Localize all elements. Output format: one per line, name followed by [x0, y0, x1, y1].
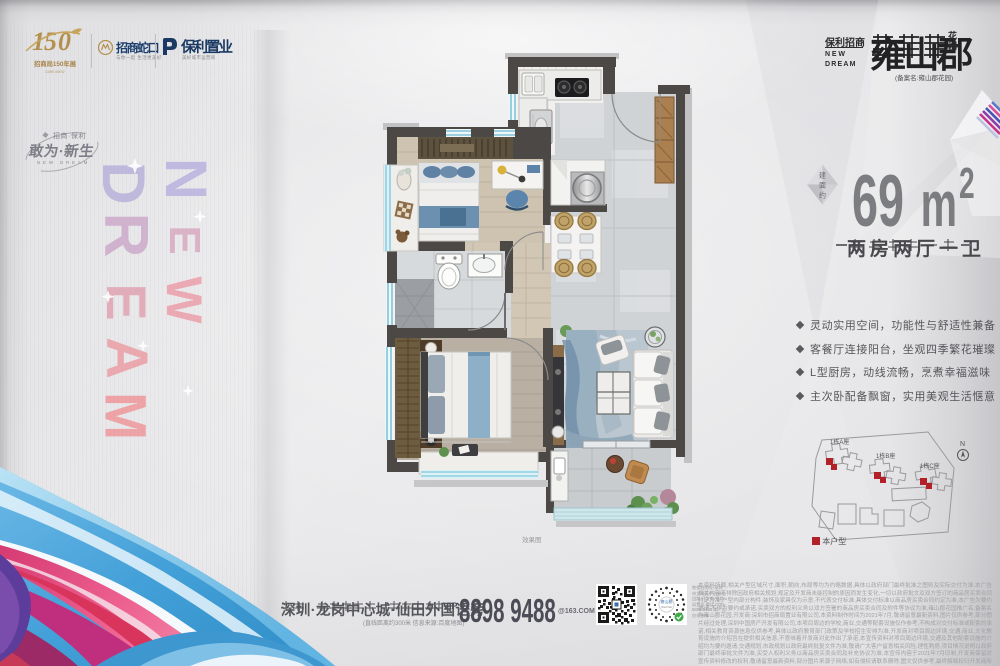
svg-text:5: 5 [44, 27, 57, 56]
svg-text:效果图: 效果图 [522, 535, 542, 544]
svg-text:N: N [960, 441, 965, 448]
svg-text:约: 约 [819, 191, 826, 200]
svg-text:雍山郡: 雍山郡 [661, 598, 673, 604]
svg-text:1栋C座: 1栋C座 [920, 462, 940, 470]
svg-text:1栋A座: 1栋A座 [830, 438, 849, 446]
svg-text:WeChat: WeChat [661, 605, 672, 609]
svg-text:1栋B座: 1栋B座 [876, 452, 895, 460]
svg-text:0: 0 [58, 27, 71, 56]
svg-text:建: 建 [819, 171, 826, 180]
svg-text:面: 面 [819, 182, 826, 190]
